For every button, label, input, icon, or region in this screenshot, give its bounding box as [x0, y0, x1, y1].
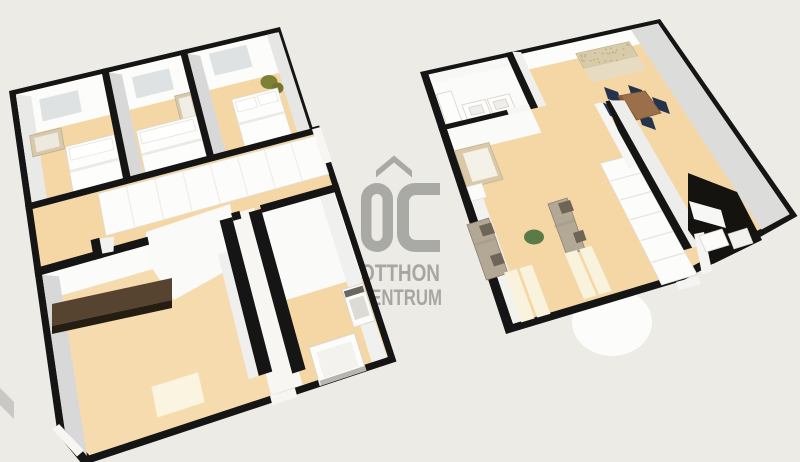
svg-text:OTTHON: OTTHON [360, 260, 440, 287]
